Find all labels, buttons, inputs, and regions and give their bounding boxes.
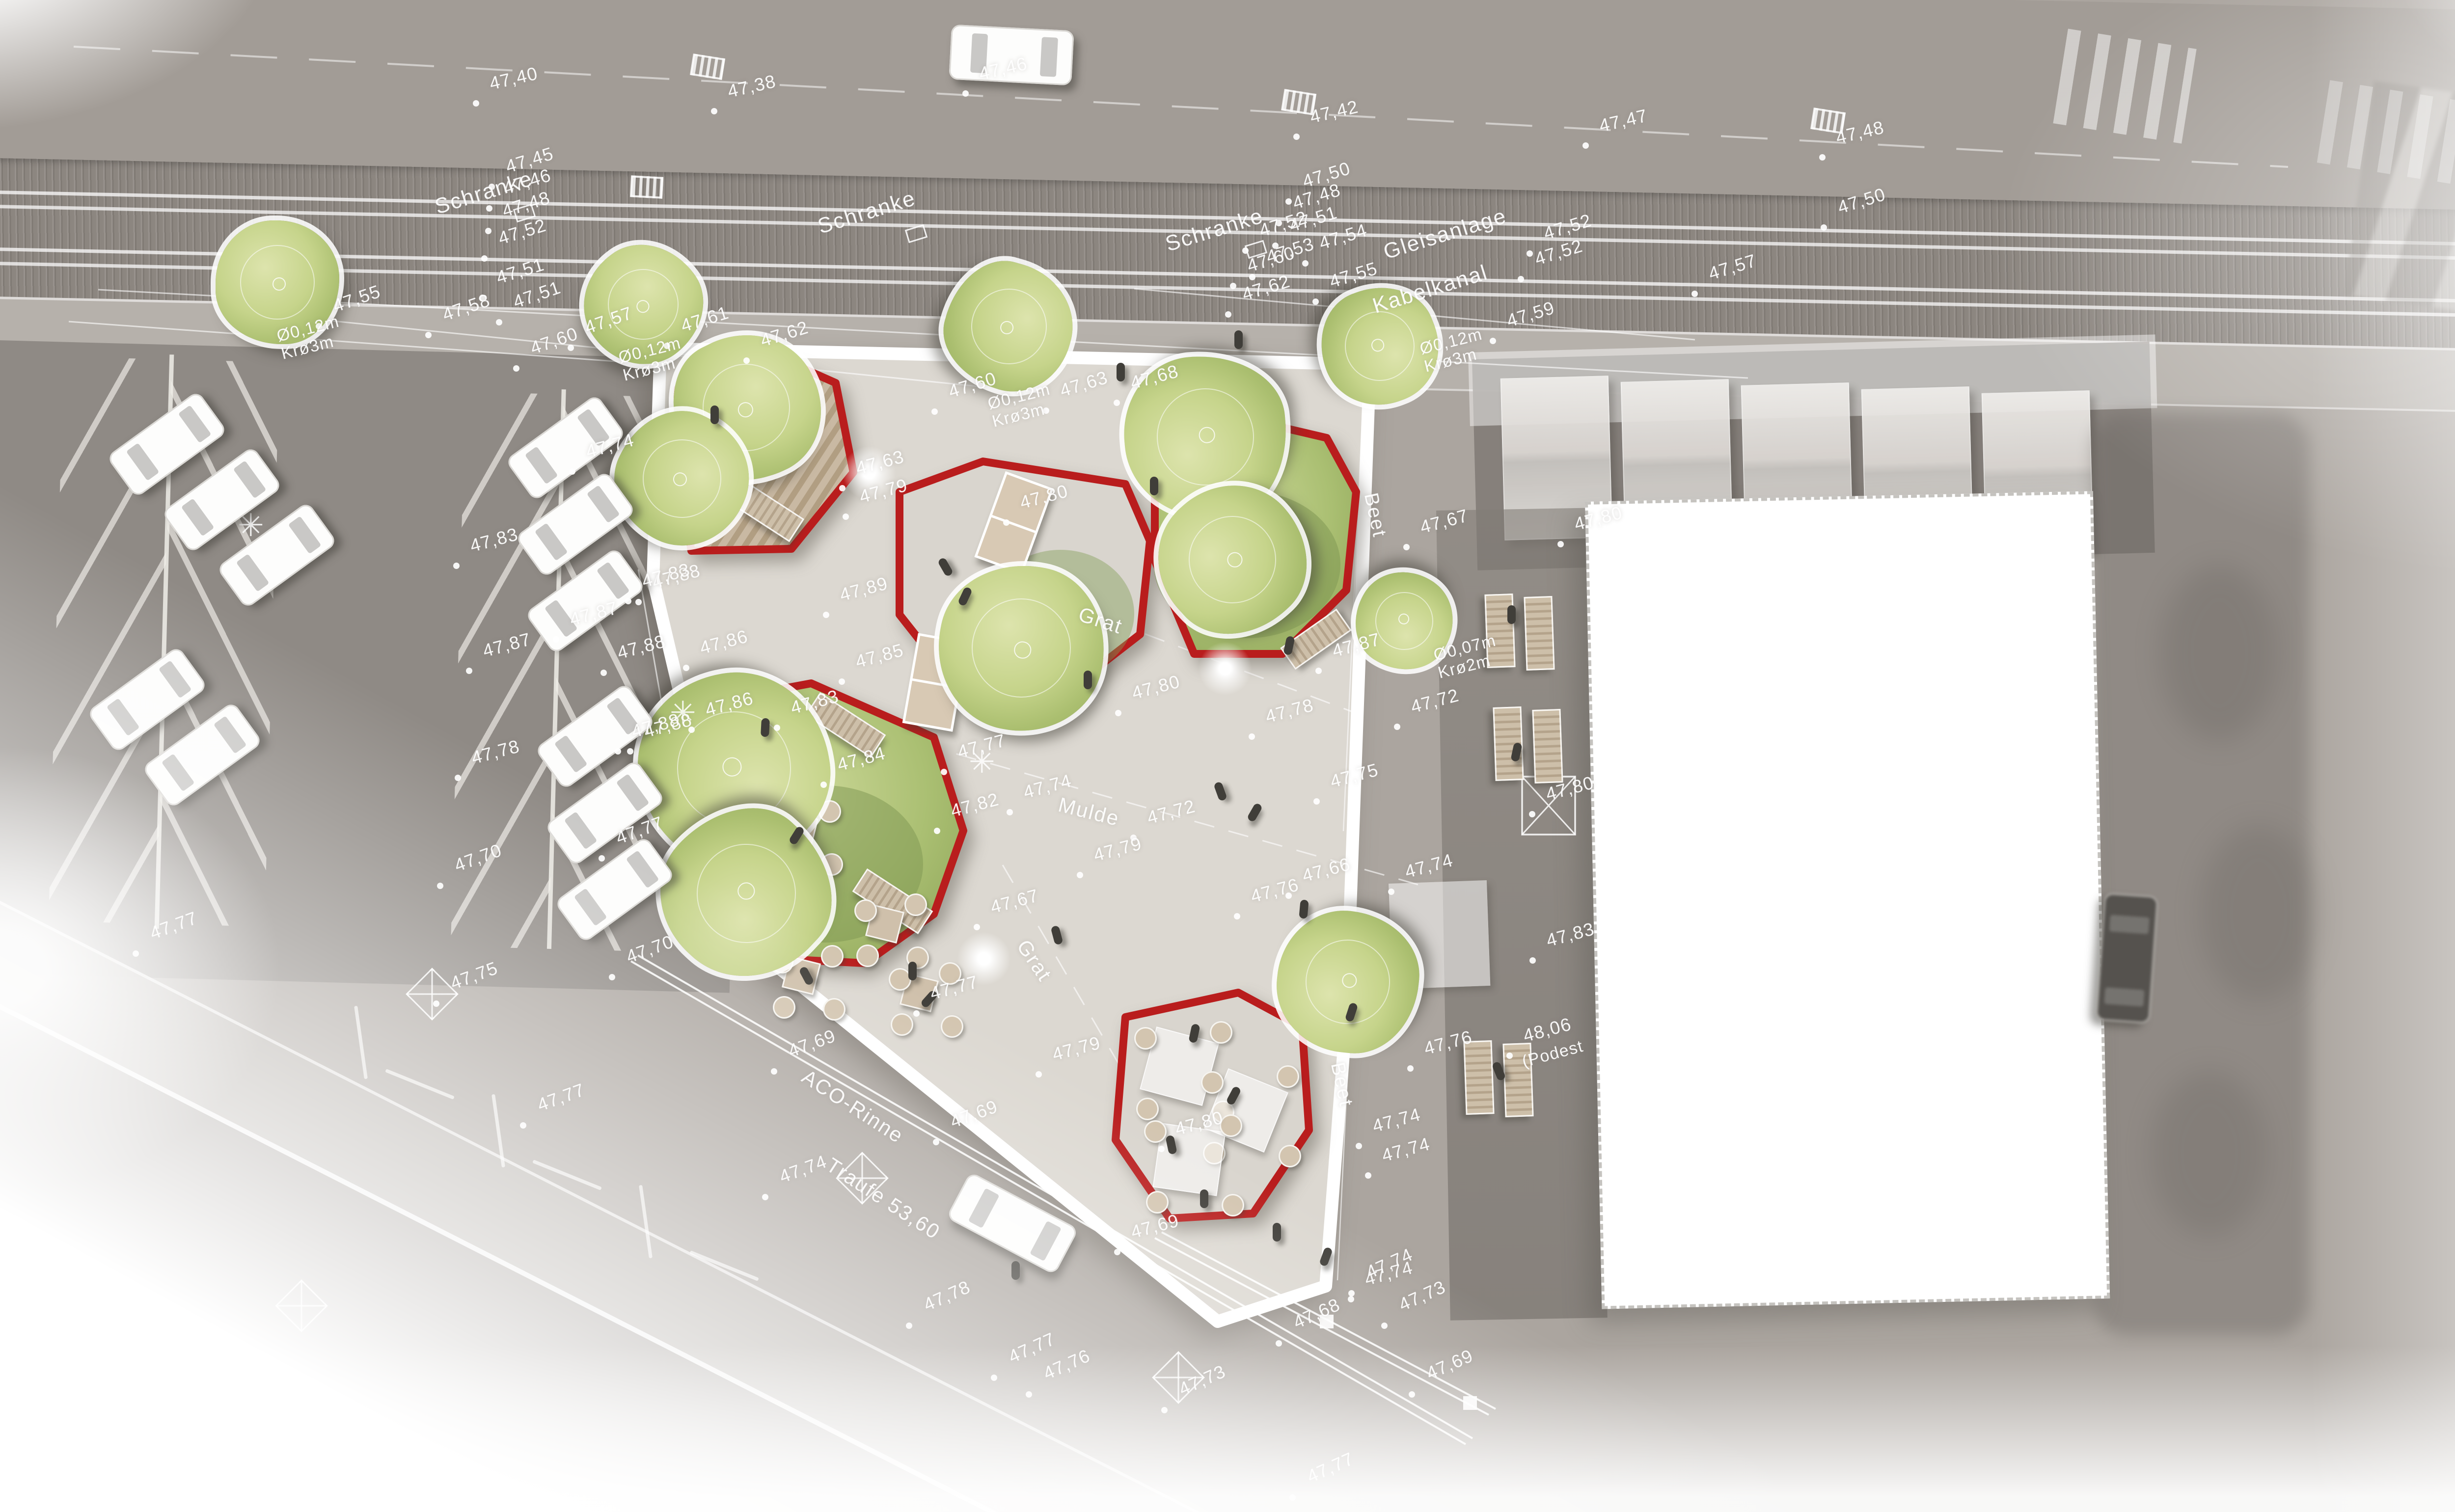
survey-node-dot bbox=[625, 598, 631, 604]
survey-node-dot bbox=[1285, 198, 1292, 205]
survey-node-dot bbox=[1114, 400, 1120, 406]
elevation-label: 47,57 bbox=[582, 303, 635, 337]
survey-node-dot bbox=[1582, 142, 1589, 149]
survey-node-dot bbox=[1518, 276, 1524, 282]
elevation-label: 47,38 bbox=[726, 71, 778, 101]
elevation-label: 47,83 bbox=[1544, 919, 1597, 950]
elevation-label: 47,52 bbox=[496, 216, 548, 248]
survey-node-dot bbox=[771, 1068, 777, 1075]
elevation-label: 47,60 bbox=[528, 324, 581, 358]
elevation-label: 47,74 bbox=[1380, 1134, 1432, 1165]
elevation-label: 47,55 bbox=[1327, 259, 1380, 292]
elevation-label: 47,73 bbox=[1396, 1277, 1449, 1315]
plan-text-label: Beet bbox=[1327, 1060, 1357, 1109]
plan-text-label: Grat bbox=[1076, 603, 1125, 638]
survey-node-dot bbox=[627, 748, 633, 755]
survey-node-dot bbox=[1388, 889, 1394, 895]
survey-node-dot bbox=[1312, 298, 1319, 305]
elevation-label: 47,75 bbox=[1328, 760, 1381, 791]
elevation-label: 47,47 bbox=[1597, 106, 1650, 135]
elevation-label: Ø0,07m Krø2m bbox=[1432, 632, 1502, 682]
plan-text-label: ACO-Rinne bbox=[798, 1065, 908, 1147]
elevation-label: 47,68 bbox=[1128, 361, 1181, 393]
elevation-label: 47,77 bbox=[147, 908, 200, 944]
elevation-label: 47,72 bbox=[1145, 796, 1198, 828]
plan-text-label: Schranke bbox=[1163, 204, 1266, 256]
elevation-label: 47,70 bbox=[624, 932, 677, 967]
elevation-label: 47,48 bbox=[1834, 117, 1886, 147]
survey-node-dot bbox=[453, 563, 460, 569]
plan-text-label: Gleisanlage bbox=[1381, 204, 1509, 264]
survey-node-dot bbox=[1557, 541, 1564, 547]
survey-node-dot bbox=[1234, 913, 1240, 919]
survey-node-dot bbox=[1293, 134, 1300, 140]
elevation-label: Ø0,12m Krø3m bbox=[1418, 325, 1489, 376]
survey-node-dot bbox=[1077, 872, 1083, 878]
elevation-label: 47,79 bbox=[1050, 1033, 1103, 1064]
elevation-label: 47,78 bbox=[469, 736, 522, 768]
elevation-label: Ø0,12m Krø3m bbox=[275, 313, 346, 363]
survey-node-dot bbox=[473, 100, 479, 107]
survey-node-dot bbox=[839, 485, 846, 491]
survey-node-dot bbox=[1381, 1323, 1388, 1329]
survey-node-dot bbox=[1407, 1065, 1414, 1072]
elevation-label: 47,66 bbox=[1300, 854, 1353, 886]
survey-node-dot bbox=[486, 205, 492, 212]
survey-node-dot bbox=[1348, 1296, 1354, 1302]
elevation-label: 47,67 bbox=[988, 886, 1041, 917]
survey-node-dot bbox=[1529, 957, 1536, 964]
elevation-label: 47,55 bbox=[330, 281, 383, 316]
elevation-label: 47,62 bbox=[758, 318, 811, 351]
survey-node-dot bbox=[466, 668, 472, 674]
elevation-label: 47,70 bbox=[452, 840, 505, 876]
survey-node-dot bbox=[1348, 1290, 1355, 1296]
plan-text-label: Mulde bbox=[1056, 793, 1122, 830]
elevation-label: 47,69 bbox=[1423, 1346, 1476, 1383]
elevation-label: 47,80 bbox=[1572, 503, 1625, 534]
survey-node-dot bbox=[599, 855, 605, 862]
elevation-label: 47,85 bbox=[853, 640, 906, 672]
survey-node-dot bbox=[1821, 224, 1827, 231]
survey-node-dot bbox=[1276, 1340, 1282, 1347]
elevation-label: 47,68 bbox=[1290, 1295, 1343, 1332]
survey-node-dot bbox=[433, 1000, 439, 1007]
survey-node-dot bbox=[843, 513, 849, 520]
elevation-label: 47,80 bbox=[1130, 672, 1182, 703]
elevation-label: 47,78 bbox=[921, 1277, 974, 1315]
plan-text-label: Kabelkanal bbox=[1370, 261, 1491, 318]
elevation-label: 47,82 bbox=[949, 789, 1001, 821]
survey-node-dot bbox=[906, 1323, 912, 1329]
survey-node-dot bbox=[1356, 1143, 1362, 1149]
plan-text-label: Beet bbox=[1360, 491, 1390, 540]
elevation-label: 47,77 bbox=[535, 1080, 588, 1115]
elevation-label: 47,87 bbox=[1330, 629, 1383, 661]
elevation-label: 47,88 bbox=[615, 631, 668, 663]
site-plan-canvas: ✳✳✳ 47,4047,3847,4647,4247,4747,4847,454… bbox=[0, 0, 2455, 1512]
survey-node-dot bbox=[1409, 1391, 1415, 1398]
elevation-label: 47,74 bbox=[584, 430, 636, 461]
survey-node-dot bbox=[1158, 1146, 1165, 1152]
survey-node-dot bbox=[1302, 260, 1309, 267]
elevation-label: 47,80 bbox=[1173, 1107, 1226, 1139]
elevation-label: 47,79 bbox=[1091, 834, 1144, 865]
survey-node-dot bbox=[1036, 1071, 1042, 1078]
survey-node-dot bbox=[1490, 338, 1496, 344]
elevation-label: 47,87 bbox=[481, 629, 533, 661]
elevation-label: 47,61 bbox=[679, 303, 731, 336]
survey-node-dot bbox=[1394, 724, 1400, 730]
elevation-label: 47,51 bbox=[511, 277, 564, 312]
survey-node-dot bbox=[609, 974, 615, 980]
survey-node-dot bbox=[962, 90, 969, 97]
elevation-label: 47,63 bbox=[854, 447, 906, 478]
survey-node-dot bbox=[1003, 519, 1009, 526]
elevation-label: 47,83 bbox=[789, 686, 841, 718]
elevation-label: 47,89 bbox=[838, 573, 890, 605]
elevation-label: 47,74 bbox=[1403, 850, 1455, 882]
elevation-label: 47,79 bbox=[857, 475, 910, 507]
survey-node-dot bbox=[931, 408, 938, 415]
survey-node-dot bbox=[934, 828, 940, 834]
plan-text-label: Schranke bbox=[815, 187, 919, 239]
elevation-label: 47,77 bbox=[613, 813, 666, 848]
survey-node-dot bbox=[913, 1010, 920, 1017]
survey-node-dot bbox=[1114, 1249, 1120, 1255]
elevation-label: 47,42 bbox=[1308, 97, 1361, 127]
elevation-label: 47,58 bbox=[440, 290, 493, 324]
survey-node-dot bbox=[1249, 733, 1255, 740]
elevation-label: 47,86 bbox=[698, 626, 750, 658]
survey-node-dot bbox=[1365, 1172, 1371, 1179]
elevation-label: 47,77 bbox=[955, 730, 1008, 762]
elevation-label: 47,57 bbox=[1706, 251, 1759, 284]
elevation-label: 47,75 bbox=[448, 958, 501, 994]
survey-node-dot bbox=[1313, 798, 1320, 805]
elevation-label: 47,80 bbox=[1544, 773, 1596, 804]
survey-node-dot bbox=[933, 1139, 939, 1145]
elevation-label: 47,77 bbox=[1304, 1449, 1357, 1486]
elevation-label: 47,80 bbox=[1018, 481, 1070, 513]
plan-text-label: Traufe 53,60 bbox=[822, 1154, 944, 1243]
elevation-label: 47,52 bbox=[1532, 236, 1585, 269]
survey-node-dot bbox=[1242, 247, 1249, 254]
survey-node-dot bbox=[688, 727, 695, 733]
elevation-label: 47,74 bbox=[1370, 1105, 1423, 1136]
survey-node-dot bbox=[520, 1122, 526, 1129]
elevation-label: 47,76 bbox=[1249, 875, 1301, 906]
survey-node-dot bbox=[569, 468, 575, 475]
elevation-label: 47,46 bbox=[977, 54, 1030, 83]
survey-node-dot bbox=[553, 636, 559, 643]
survey-node-dot bbox=[1691, 291, 1698, 297]
survey-node-dot bbox=[683, 665, 689, 671]
elevation-label: 47,59 bbox=[1504, 298, 1557, 331]
survey-node-dot bbox=[839, 678, 845, 685]
survey-node-dot bbox=[974, 924, 980, 930]
elevation-label: 47,84 bbox=[835, 743, 888, 775]
survey-node-dot bbox=[615, 748, 621, 755]
elevation-label: 47,73 bbox=[1176, 1361, 1229, 1399]
elevation-label: 47,62 bbox=[1240, 271, 1292, 304]
elevation-label: 47,87 bbox=[568, 598, 620, 629]
survey-node-dot bbox=[496, 319, 502, 325]
elevation-label: 47,77 bbox=[928, 972, 981, 1003]
plan-text-label: Grat bbox=[1012, 936, 1056, 985]
survey-node-dot bbox=[481, 255, 488, 262]
survey-node-dot bbox=[600, 670, 607, 676]
elevation-label: 47,67 bbox=[1418, 506, 1471, 537]
elevation-label: 47,86 bbox=[703, 688, 756, 720]
survey-node-dot bbox=[133, 950, 139, 957]
survey-node-dot bbox=[513, 365, 519, 372]
survey-node-dot bbox=[1026, 1391, 1032, 1398]
survey-node-dot bbox=[425, 332, 432, 338]
annotation-layer: 47,4047,3847,4647,4247,4747,4847,4547,46… bbox=[0, 0, 2455, 1512]
elevation-label: 47,69 bbox=[786, 1026, 839, 1061]
survey-node-dot bbox=[485, 228, 491, 234]
elevation-label: 47,72 bbox=[1409, 685, 1461, 717]
elevation-label: 47,69 bbox=[948, 1097, 1001, 1132]
survey-node-dot bbox=[1007, 809, 1013, 815]
survey-node-dot bbox=[455, 775, 461, 781]
elevation-label: 47,74 bbox=[777, 1152, 830, 1187]
survey-node-dot bbox=[1506, 1053, 1513, 1059]
elevation-label: 47,76 bbox=[1422, 1027, 1474, 1058]
survey-node-dot bbox=[820, 782, 827, 788]
survey-node-dot bbox=[774, 725, 780, 731]
survey-node-dot bbox=[762, 1194, 768, 1200]
survey-node-dot bbox=[1289, 1494, 1296, 1501]
survey-node-dot bbox=[1527, 250, 1533, 257]
survey-node-dot bbox=[941, 769, 947, 775]
survey-node-dot bbox=[711, 108, 717, 114]
survey-node-dot bbox=[1403, 544, 1410, 550]
survey-node-dot bbox=[568, 345, 574, 351]
elevation-label: 47,50 bbox=[1835, 185, 1888, 217]
survey-node-dot bbox=[635, 599, 642, 605]
survey-node-dot bbox=[991, 1375, 997, 1381]
survey-node-dot bbox=[1315, 668, 1322, 674]
survey-node-dot bbox=[823, 612, 829, 618]
survey-node-dot bbox=[743, 357, 750, 364]
survey-node-dot bbox=[1819, 154, 1826, 161]
survey-node-dot bbox=[1529, 811, 1535, 817]
survey-node-dot bbox=[1115, 710, 1121, 716]
elevation-label: 47,78 bbox=[1263, 695, 1316, 727]
survey-node-dot bbox=[437, 883, 443, 889]
elevation-label: Ø0,12m Krø3m bbox=[617, 334, 687, 385]
elevation-label: 47,40 bbox=[488, 63, 540, 93]
survey-node-dot bbox=[1225, 311, 1231, 318]
survey-node-dot bbox=[1161, 1407, 1168, 1413]
survey-node-dot bbox=[1230, 283, 1236, 289]
elevation-label: 47,83 bbox=[468, 524, 520, 556]
elevation-label: 47,63 bbox=[1058, 368, 1110, 401]
elevation-label: 47,69 bbox=[1129, 1211, 1181, 1242]
